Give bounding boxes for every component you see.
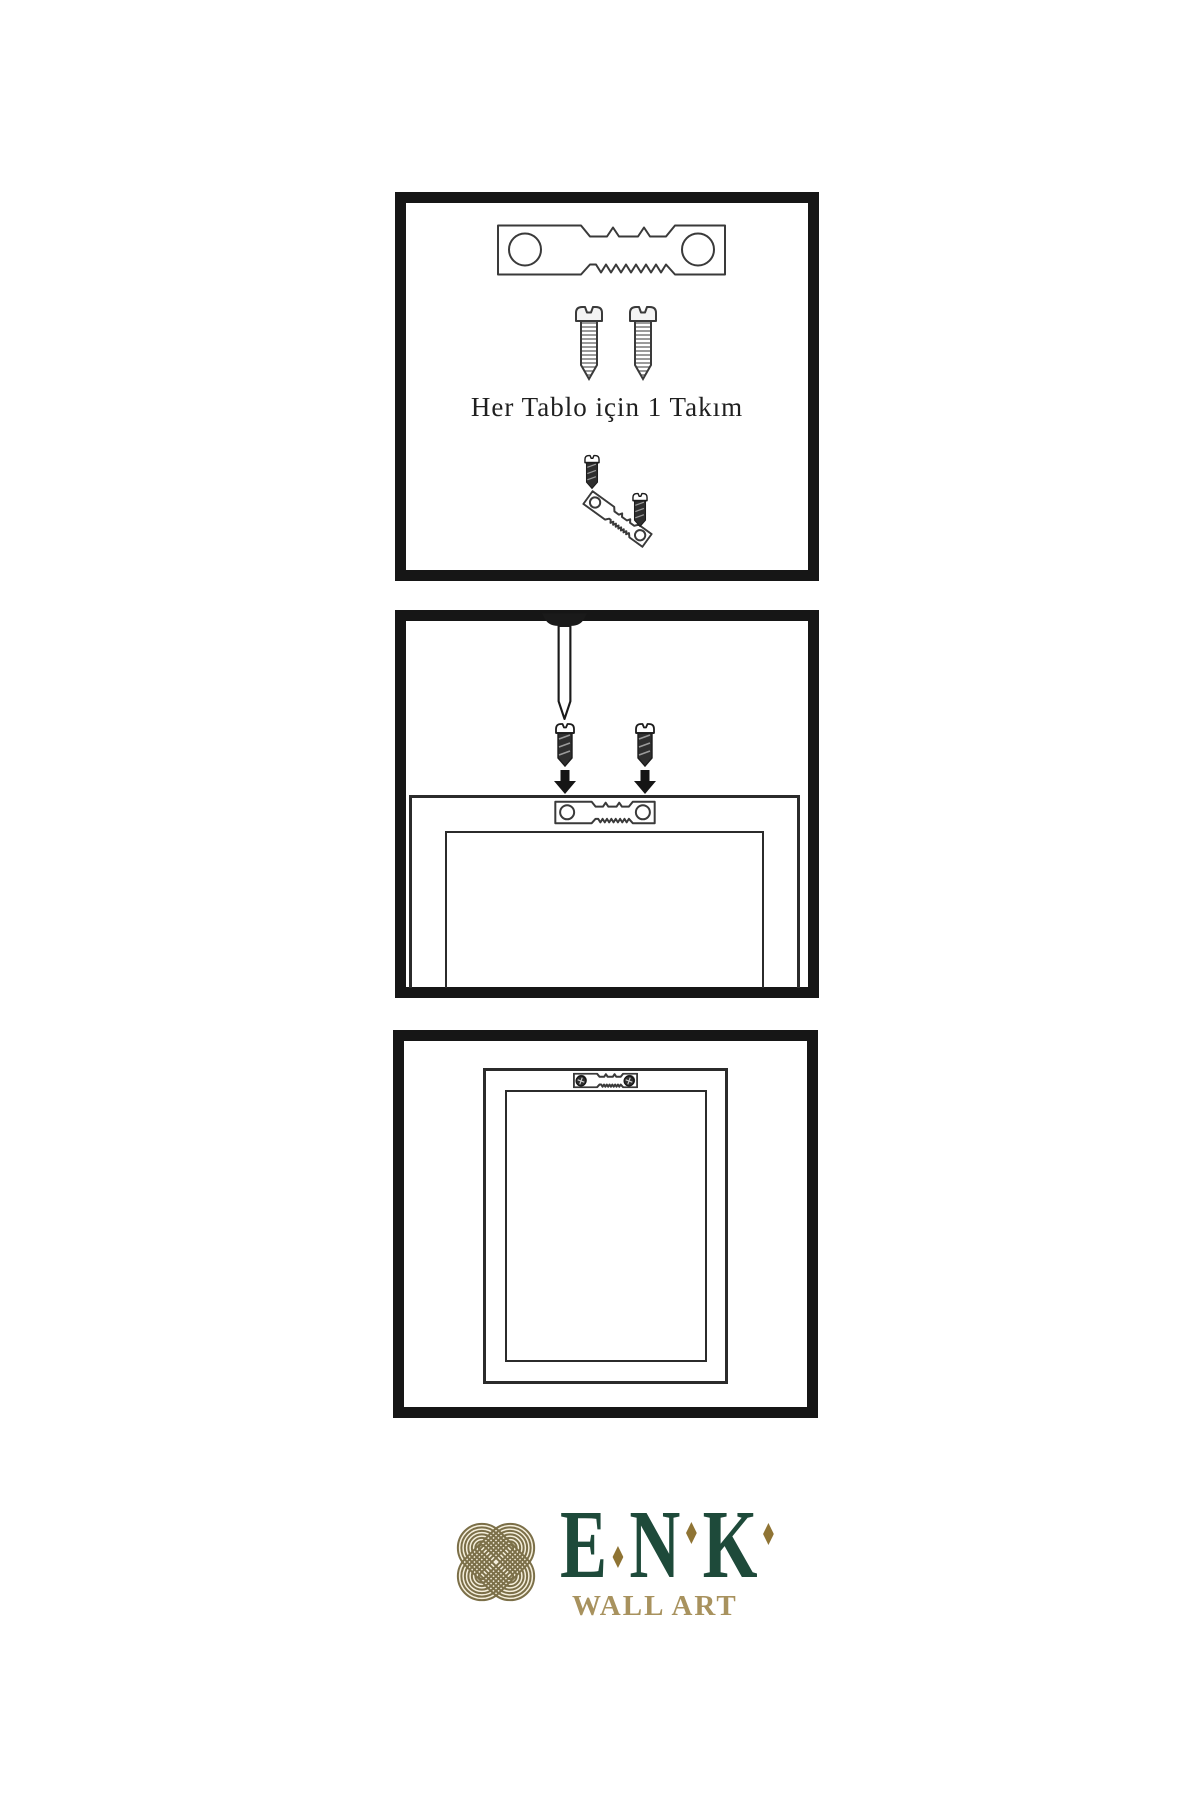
arrow-down-icon bbox=[553, 770, 577, 794]
brand-letter: E bbox=[560, 1496, 607, 1594]
frame-inner-outline bbox=[505, 1090, 707, 1362]
small-screw-icon bbox=[554, 722, 576, 768]
sawtooth-hanger-small-icon bbox=[554, 800, 656, 825]
arrow-down-icon bbox=[633, 770, 657, 794]
small-screw-icon bbox=[631, 492, 649, 528]
screw-head-icon bbox=[623, 1075, 635, 1087]
small-screw-icon bbox=[634, 722, 656, 768]
diamond-icon bbox=[686, 1522, 697, 1544]
page-root: Her Tablo için 1 Takım bbox=[0, 0, 1200, 1800]
sawtooth-hanger-icon bbox=[495, 222, 728, 278]
brand-name: E N K bbox=[560, 1496, 774, 1594]
kit-caption: Her Tablo için 1 Takım bbox=[406, 393, 808, 421]
diamond-icon bbox=[763, 1523, 774, 1545]
frame-inner-outline bbox=[445, 831, 764, 988]
small-screw-icon bbox=[583, 454, 601, 490]
brand-letter: N bbox=[629, 1496, 680, 1594]
diamond-icon bbox=[613, 1546, 624, 1568]
brand-letter: K bbox=[703, 1496, 758, 1594]
brand-tagline: WALL ART bbox=[572, 1590, 738, 1623]
wall-nail-icon bbox=[541, 612, 588, 724]
knot-logo-icon bbox=[435, 1500, 557, 1625]
screw-icon bbox=[626, 305, 660, 382]
screw-head-icon bbox=[575, 1075, 587, 1087]
screw-icon bbox=[572, 305, 606, 382]
